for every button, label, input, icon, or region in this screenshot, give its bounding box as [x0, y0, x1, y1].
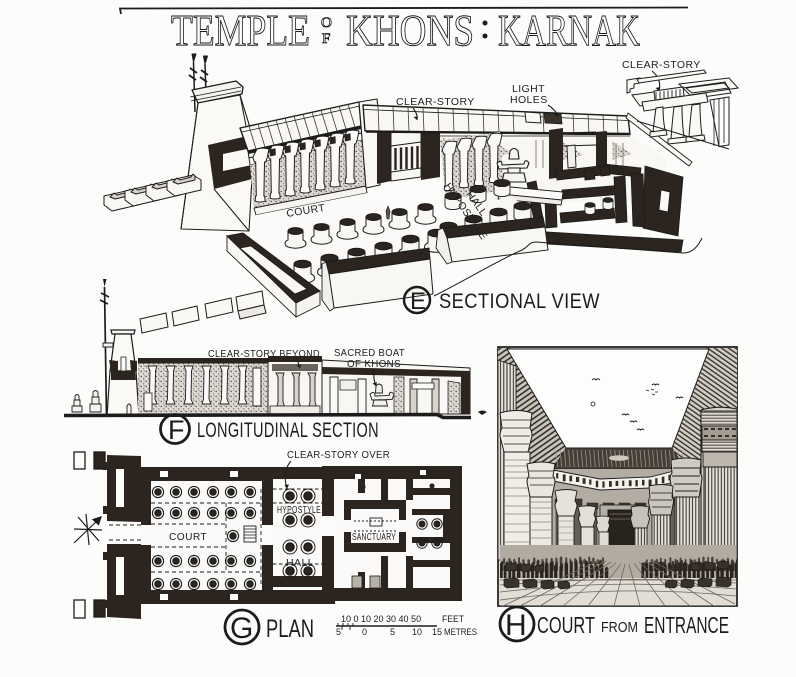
- svg-text:5: 5: [390, 627, 395, 637]
- svg-text:KHONS: KHONS: [346, 6, 474, 55]
- svg-text:SECTIONAL VIEW: SECTIONAL VIEW: [439, 290, 600, 313]
- svg-text:10: 10: [412, 627, 422, 637]
- svg-text:F: F: [322, 31, 330, 47]
- svg-text:PLAN: PLAN: [266, 615, 314, 643]
- svg-text:G: G: [230, 612, 253, 645]
- svg-text:METRES: METRES: [444, 627, 477, 637]
- svg-text:CLEAR-STORY BEYOND: CLEAR-STORY BEYOND: [208, 348, 320, 360]
- svg-text:FEET: FEET: [442, 614, 464, 624]
- svg-text:0: 0: [362, 627, 367, 637]
- svg-text:CLEAR-STORY: CLEAR-STORY: [622, 59, 701, 71]
- svg-text:COURT: COURT: [537, 612, 595, 638]
- svg-text:CLEAR-STORY: CLEAR-STORY: [396, 96, 475, 108]
- svg-text:HALL: HALL: [286, 557, 314, 569]
- svg-text:O: O: [321, 15, 332, 31]
- svg-text:ENTRANCE: ENTRANCE: [644, 612, 729, 638]
- svg-text:LONGITUDINAL SECTION: LONGITUDINAL SECTION: [197, 419, 379, 442]
- svg-text:OF KHONS: OF KHONS: [347, 358, 401, 370]
- svg-text:COURT: COURT: [169, 531, 207, 543]
- svg-text:10 0 10 20 30 40 50: 10 0 10 20 30 40 50: [341, 614, 421, 624]
- svg-text:F: F: [168, 415, 185, 445]
- svg-text:TEMPLE: TEMPLE: [171, 6, 310, 55]
- svg-text:KARNAK: KARNAK: [498, 6, 640, 55]
- svg-text:H: H: [505, 609, 527, 642]
- svg-text:5: 5: [336, 627, 341, 637]
- svg-text:15: 15: [432, 627, 442, 637]
- svg-text:E: E: [410, 288, 426, 315]
- svg-text:HYPOSTYLE: HYPOSTYLE: [277, 504, 321, 516]
- svg-text:CLEAR-STORY OVER: CLEAR-STORY OVER: [287, 449, 390, 461]
- svg-text:HOLES: HOLES: [510, 94, 548, 106]
- svg-text:FROM: FROM: [601, 619, 638, 636]
- svg-text:SANCTUARY: SANCTUARY: [352, 531, 396, 543]
